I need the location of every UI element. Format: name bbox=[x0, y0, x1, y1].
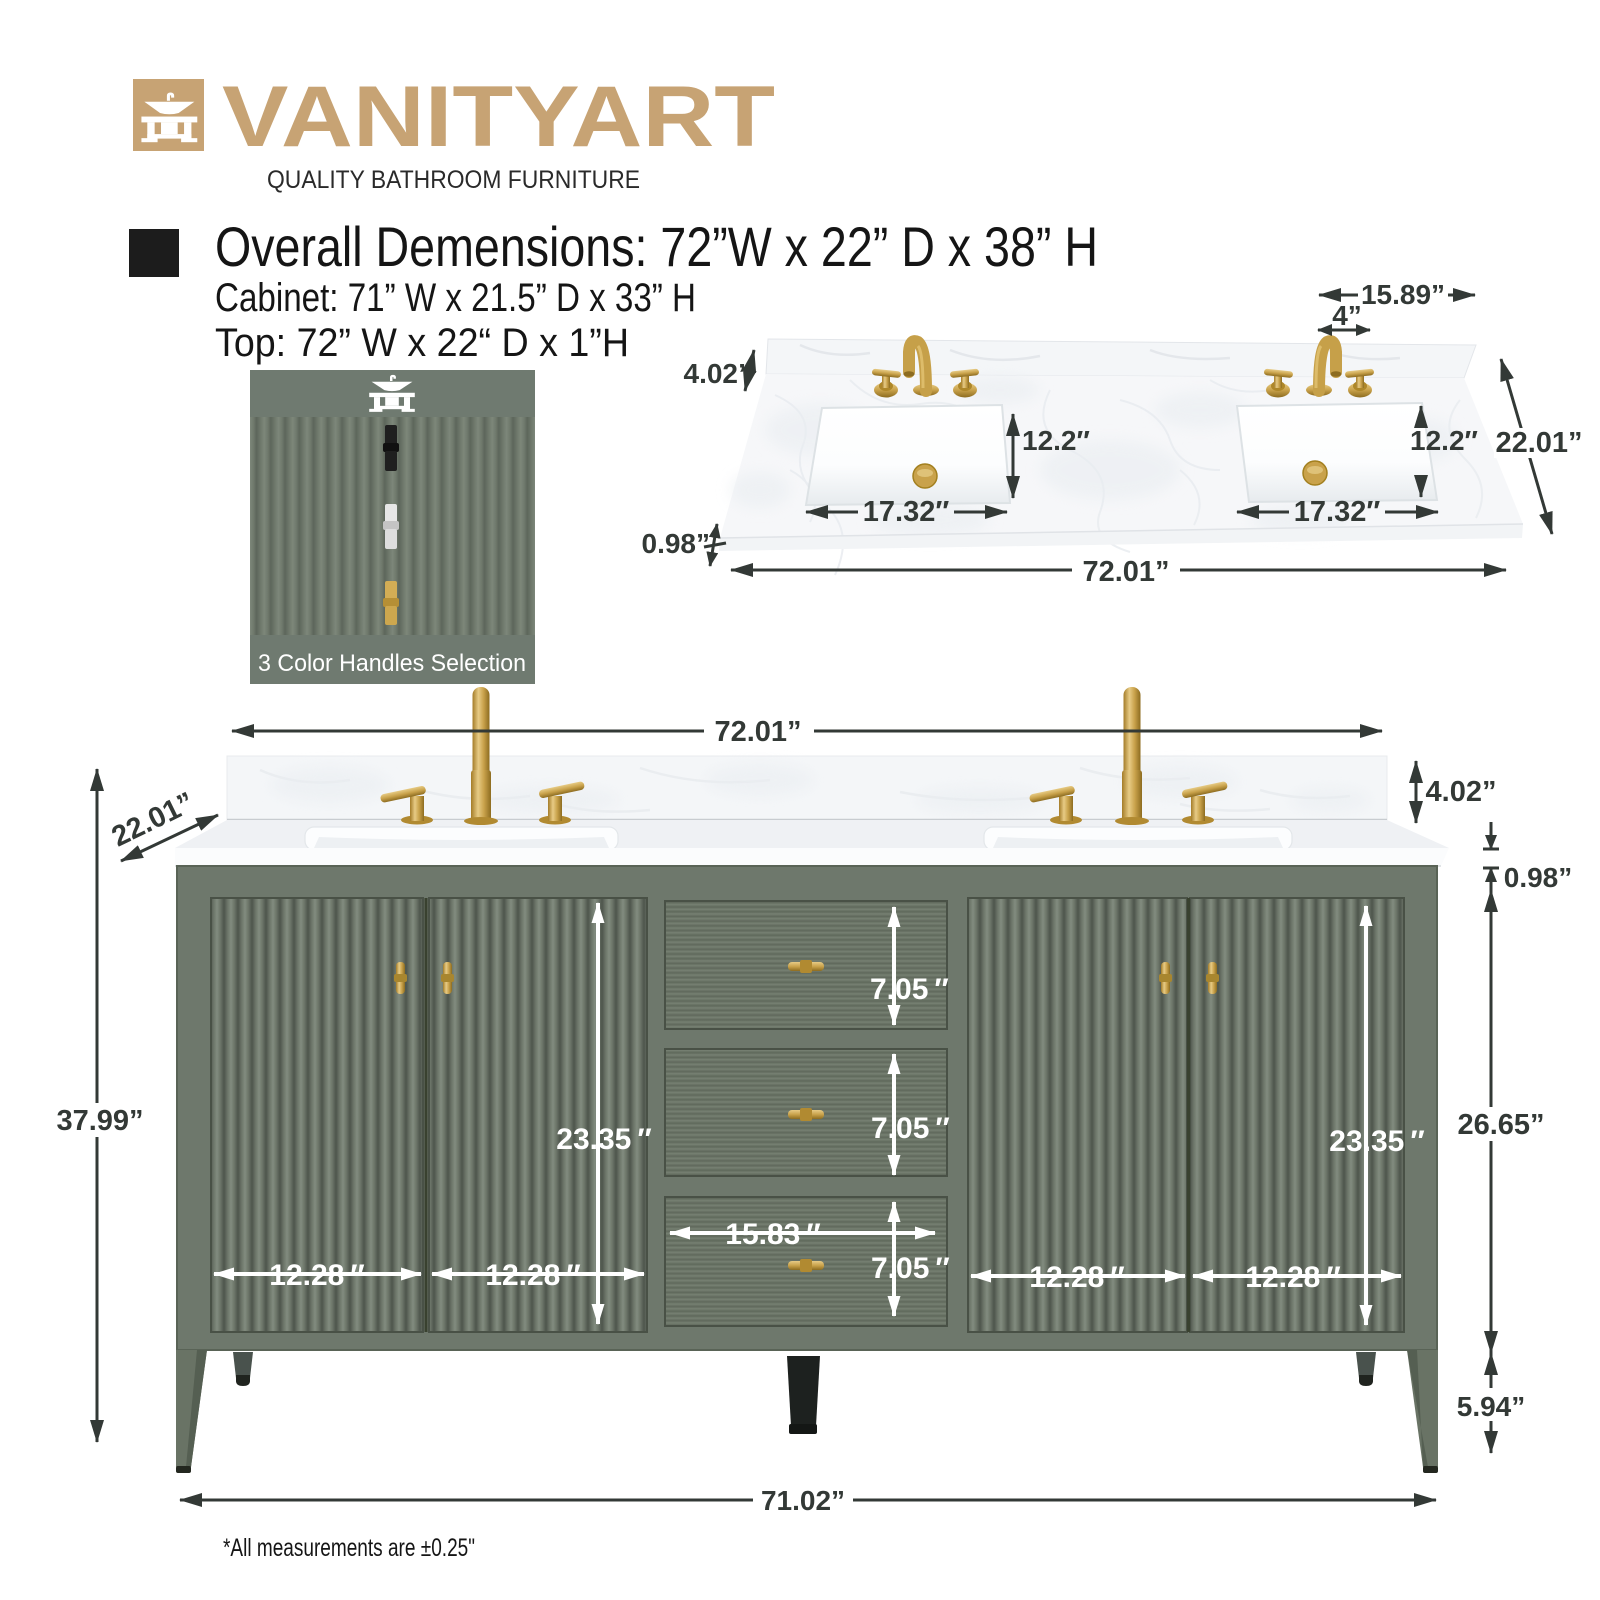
svg-text:72.01”: 72.01” bbox=[714, 716, 801, 748]
svg-text:0.98”: 0.98” bbox=[1504, 862, 1573, 893]
svg-text:12.28 ″: 12.28 ″ bbox=[1245, 1261, 1340, 1294]
svg-text:71.02”: 71.02” bbox=[761, 1485, 845, 1516]
svg-text:17.32″: 17.32″ bbox=[1294, 496, 1381, 528]
svg-text:37.99”: 37.99” bbox=[56, 1105, 143, 1137]
svg-text:7.05 ″: 7.05 ″ bbox=[871, 1252, 950, 1285]
svg-text:5.94”: 5.94” bbox=[1457, 1391, 1526, 1422]
svg-text:QUALITY BATHROOM FURNITURE: QUALITY BATHROOM FURNITURE bbox=[267, 166, 640, 194]
svg-text:*All measurements are ±0.25": *All measurements are ±0.25" bbox=[223, 1534, 475, 1562]
svg-text:12.28 ″: 12.28 ″ bbox=[485, 1259, 580, 1292]
svg-text:VANITYART: VANITYART bbox=[222, 69, 775, 165]
svg-text:3 Color Handles Selection: 3 Color Handles Selection bbox=[258, 650, 526, 677]
svg-text:12.2″: 12.2″ bbox=[1410, 425, 1478, 456]
svg-text:0.98”: 0.98” bbox=[642, 528, 711, 559]
svg-text:4.02”: 4.02” bbox=[684, 358, 753, 389]
svg-text:4.02”: 4.02” bbox=[1426, 776, 1497, 808]
svg-text:23.35 ″: 23.35 ″ bbox=[1329, 1125, 1424, 1158]
svg-text:26.65”: 26.65” bbox=[1457, 1109, 1544, 1141]
svg-text:4”: 4” bbox=[1332, 300, 1362, 331]
svg-text:12.28 ″: 12.28 ″ bbox=[269, 1259, 364, 1292]
svg-text:15.83 ″: 15.83 ″ bbox=[725, 1218, 820, 1251]
svg-text:72.01”: 72.01” bbox=[1082, 556, 1169, 588]
svg-text:23.35 ″: 23.35 ″ bbox=[556, 1123, 651, 1156]
svg-text:Cabinet: 71” W x 21.5” D x 33”: Cabinet: 71” W x 21.5” D x 33” H bbox=[215, 276, 696, 320]
svg-text:15.89”: 15.89” bbox=[1361, 279, 1445, 310]
svg-text:22.01”: 22.01” bbox=[1495, 427, 1582, 459]
svg-text:12.28 ″: 12.28 ″ bbox=[1029, 1261, 1124, 1294]
svg-text:Overall Demensions: 72”W x 22”: Overall Demensions: 72”W x 22” D x 38” H bbox=[215, 215, 1098, 278]
svg-text:Top: 72” W x 22“ D x 1”H: Top: 72” W x 22“ D x 1”H bbox=[215, 321, 629, 365]
svg-text:17.32″: 17.32″ bbox=[863, 496, 950, 528]
svg-text:7.05 ″: 7.05 ″ bbox=[871, 1112, 950, 1145]
svg-text:12.2″: 12.2″ bbox=[1022, 425, 1090, 456]
svg-text:7.05 ″: 7.05 ″ bbox=[870, 973, 949, 1006]
